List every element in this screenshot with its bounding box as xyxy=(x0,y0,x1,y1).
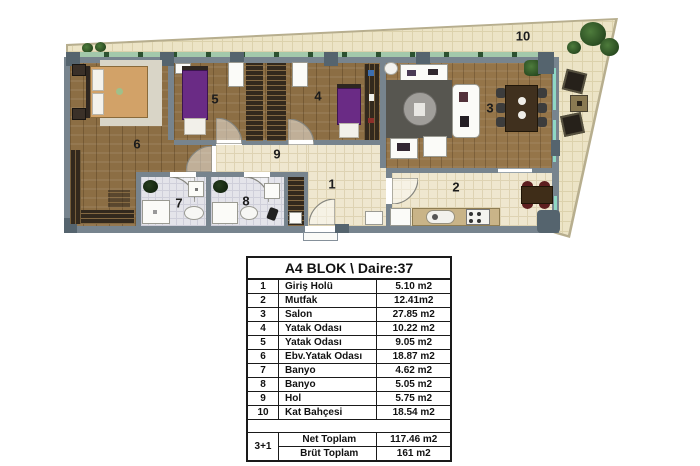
row-num: 3 xyxy=(247,308,279,322)
row-name: Kat Bahçesi xyxy=(279,406,377,420)
row-name: Yatak Odası xyxy=(279,322,377,336)
gross-total-value: 161 m2 xyxy=(377,447,451,462)
row-num: 5 xyxy=(247,336,279,350)
row-name: Mutfak xyxy=(279,294,377,308)
summary-row: Brüt Toplam 161 m2 xyxy=(247,447,451,462)
nightstand xyxy=(72,108,86,120)
table-row: 7Banyo4.62 m2 xyxy=(247,364,451,378)
wardrobe-item xyxy=(369,94,374,101)
room-label-1: 1 xyxy=(328,178,335,191)
room-label-8: 8 xyxy=(242,195,249,208)
area-table: A4 BLOK \ Daire:37 1Giriş Holü5.10 m2 2M… xyxy=(246,256,452,462)
washing-machine xyxy=(289,212,302,224)
door-arc xyxy=(216,118,242,144)
wardrobe-item xyxy=(368,70,374,76)
row-area: 18.54 m2 xyxy=(377,406,451,420)
stove-burner xyxy=(477,219,481,223)
garden-table-dot xyxy=(577,101,582,106)
row-area: 12.41m2 xyxy=(377,294,451,308)
bed-foot-blanket xyxy=(339,123,359,138)
table-row: 8Banyo5.05 m2 xyxy=(247,378,451,392)
coffee-table-tray xyxy=(414,103,425,116)
table-row: 1Giriş Holü5.10 m2 xyxy=(247,279,451,294)
wardrobe xyxy=(70,150,81,224)
row-num: 10 xyxy=(247,406,279,420)
kitchen-sink xyxy=(426,210,455,224)
window-planter-strip xyxy=(70,52,552,57)
single-bed xyxy=(337,88,361,125)
apartment-type: 3+1 xyxy=(247,433,279,462)
shower xyxy=(212,202,238,224)
floor-plan-page: 1 2 3 4 5 6 7 8 9 10 A4 BLOK \ Daire:37 … xyxy=(0,0,700,466)
table-row: 6Ebv.Yatak Odası18.87 m2 xyxy=(247,350,451,364)
row-num: 4 xyxy=(247,322,279,336)
row-area: 5.10 m2 xyxy=(377,279,451,294)
bed-foot-blanket xyxy=(184,118,206,135)
armchair-cushion xyxy=(397,143,410,151)
row-name: Banyo xyxy=(279,364,377,378)
fridge xyxy=(390,208,411,226)
row-name: Ebv.Yatak Odası xyxy=(279,350,377,364)
room-label-5: 5 xyxy=(211,93,218,106)
dining-chair xyxy=(537,88,547,98)
table-row: 10Kat Bahçesi18.54 m2 xyxy=(247,406,451,420)
sink-drain xyxy=(195,188,198,191)
plant-icon xyxy=(143,180,158,193)
row-name: Hol xyxy=(279,392,377,406)
table-row: 4Yatak Odası10.22 m2 xyxy=(247,322,451,336)
row-name: Banyo xyxy=(279,378,377,392)
room-label-6: 6 xyxy=(133,138,140,151)
row-num: 1 xyxy=(247,279,279,294)
stove-burner xyxy=(477,212,481,216)
entrance-step xyxy=(303,232,338,241)
door-arc xyxy=(186,146,212,172)
dining-chair xyxy=(537,117,547,127)
bathroom-sink xyxy=(264,183,280,199)
bed-accent xyxy=(116,88,123,95)
room-label-4: 4 xyxy=(314,90,321,103)
wall-block xyxy=(538,60,554,74)
table-row: 9Hol5.75 m2 xyxy=(247,392,451,406)
kitchen-table xyxy=(521,186,553,204)
closet xyxy=(246,63,263,141)
net-total-label: Net Toplam xyxy=(279,433,377,447)
window xyxy=(553,68,556,110)
garden-chair xyxy=(560,112,585,137)
row-name: Giriş Holü xyxy=(279,279,377,294)
table-row: 3Salon27.85 m2 xyxy=(247,308,451,322)
row-num: 9 xyxy=(247,392,279,406)
door-arc xyxy=(392,178,418,204)
door-arc xyxy=(288,119,314,145)
chaise-cushion xyxy=(459,92,468,102)
room-label-9: 9 xyxy=(273,148,280,161)
row-num: 6 xyxy=(247,350,279,364)
plant-icon xyxy=(213,180,228,193)
dining-table-plate xyxy=(518,97,526,105)
stove-burner xyxy=(469,212,473,216)
door-opening xyxy=(212,146,216,172)
column xyxy=(537,210,560,233)
row-area: 9.05 m2 xyxy=(377,336,451,350)
sink-faucet xyxy=(432,214,438,220)
toilet xyxy=(184,206,204,220)
sliding-door-opening xyxy=(498,168,532,173)
dining-table-plate xyxy=(518,111,526,119)
wall xyxy=(136,172,308,177)
tree-icon xyxy=(567,41,581,54)
tree-icon xyxy=(600,38,619,56)
wall xyxy=(136,177,141,226)
gross-total-label: Brüt Toplam xyxy=(279,447,377,462)
column xyxy=(160,52,174,66)
spacer-row xyxy=(247,420,451,433)
rug-striped xyxy=(108,190,130,208)
wardrobe-item xyxy=(368,118,374,123)
row-area: 5.75 m2 xyxy=(377,392,451,406)
dining-table xyxy=(505,85,538,132)
chaise-cushion xyxy=(460,116,469,127)
column xyxy=(324,52,338,66)
row-name: Salon xyxy=(279,308,377,322)
wardrobe xyxy=(81,210,134,224)
nightstand xyxy=(72,64,86,76)
row-num: 8 xyxy=(247,378,279,392)
spacer-cell xyxy=(247,420,451,433)
single-bed xyxy=(182,70,208,120)
wall xyxy=(206,177,211,226)
net-total-value: 117.46 m2 xyxy=(377,433,451,447)
dresser xyxy=(228,62,244,87)
tree-icon xyxy=(95,42,106,52)
floor-lamp xyxy=(384,62,398,75)
column xyxy=(551,140,560,156)
room-label-3: 3 xyxy=(486,102,493,115)
row-name: Yatak Odası xyxy=(279,336,377,350)
table-title: A4 BLOK \ Daire:37 xyxy=(247,257,451,279)
room-label-10: 10 xyxy=(516,30,530,43)
row-num: 2 xyxy=(247,294,279,308)
dining-chair xyxy=(537,103,547,113)
row-area: 18.87 m2 xyxy=(377,350,451,364)
pillow xyxy=(92,69,104,91)
stove-burner xyxy=(469,219,473,223)
sofa-cushion xyxy=(428,69,438,75)
wall xyxy=(168,63,174,140)
table-row: 2Mutfak12.41m2 xyxy=(247,294,451,308)
shower-drain xyxy=(153,210,157,214)
pillow xyxy=(92,93,104,115)
sofa-cushion xyxy=(407,70,416,76)
closet xyxy=(267,63,286,141)
table-row: 5Yatak Odası9.05 m2 xyxy=(247,336,451,350)
wall xyxy=(304,177,308,226)
row-num: 7 xyxy=(247,364,279,378)
row-area: 5.05 m2 xyxy=(377,378,451,392)
column xyxy=(335,224,349,233)
room-label-2: 2 xyxy=(452,181,459,194)
room-label-7: 7 xyxy=(175,197,182,210)
summary-row: 3+1 Net Toplam 117.46 m2 xyxy=(247,433,451,447)
entrance-door-arc xyxy=(309,199,335,225)
floor-plan: 1 2 3 4 5 6 7 8 9 10 xyxy=(0,0,700,250)
entry-cabinet xyxy=(365,211,383,225)
dresser xyxy=(292,62,308,87)
row-area: 10.22 m2 xyxy=(377,322,451,336)
armchair xyxy=(423,136,447,157)
row-area: 4.62 m2 xyxy=(377,364,451,378)
row-area: 27.85 m2 xyxy=(377,308,451,322)
